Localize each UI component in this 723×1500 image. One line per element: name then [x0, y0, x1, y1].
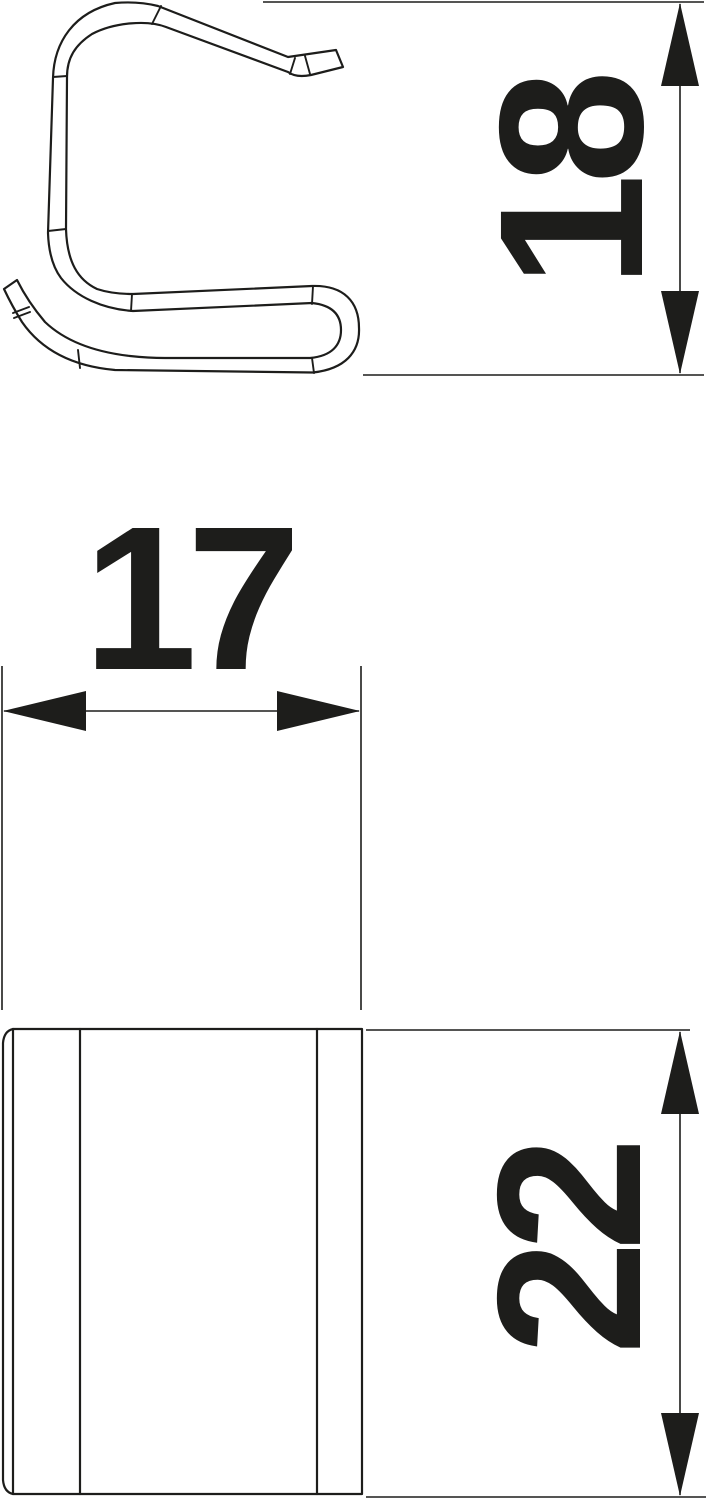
- arrowhead-up: [661, 3, 699, 86]
- dimension-front-width: 17: [2, 484, 361, 1010]
- dimension-value-18: 18: [457, 76, 686, 288]
- dimension-value-22: 22: [455, 1145, 684, 1355]
- arrowhead-left: [3, 691, 86, 731]
- clip-front-outline: [3, 1029, 362, 1494]
- clip-front-view: [3, 1029, 362, 1494]
- arrowhead-down: [661, 291, 699, 374]
- clip-side-view: [4, 2, 359, 373]
- bend-division-lines: [13, 6, 314, 373]
- dimension-value-17: 17: [83, 484, 292, 713]
- arrowhead-down: [661, 1413, 699, 1496]
- technical-drawing-page: 18 17 22: [0, 0, 723, 1500]
- dimension-side-height: 18: [263, 2, 704, 375]
- dimension-front-height: 22: [366, 1030, 706, 1497]
- arrowhead-up: [661, 1031, 699, 1114]
- drawing-canvas: 18 17 22: [0, 0, 723, 1500]
